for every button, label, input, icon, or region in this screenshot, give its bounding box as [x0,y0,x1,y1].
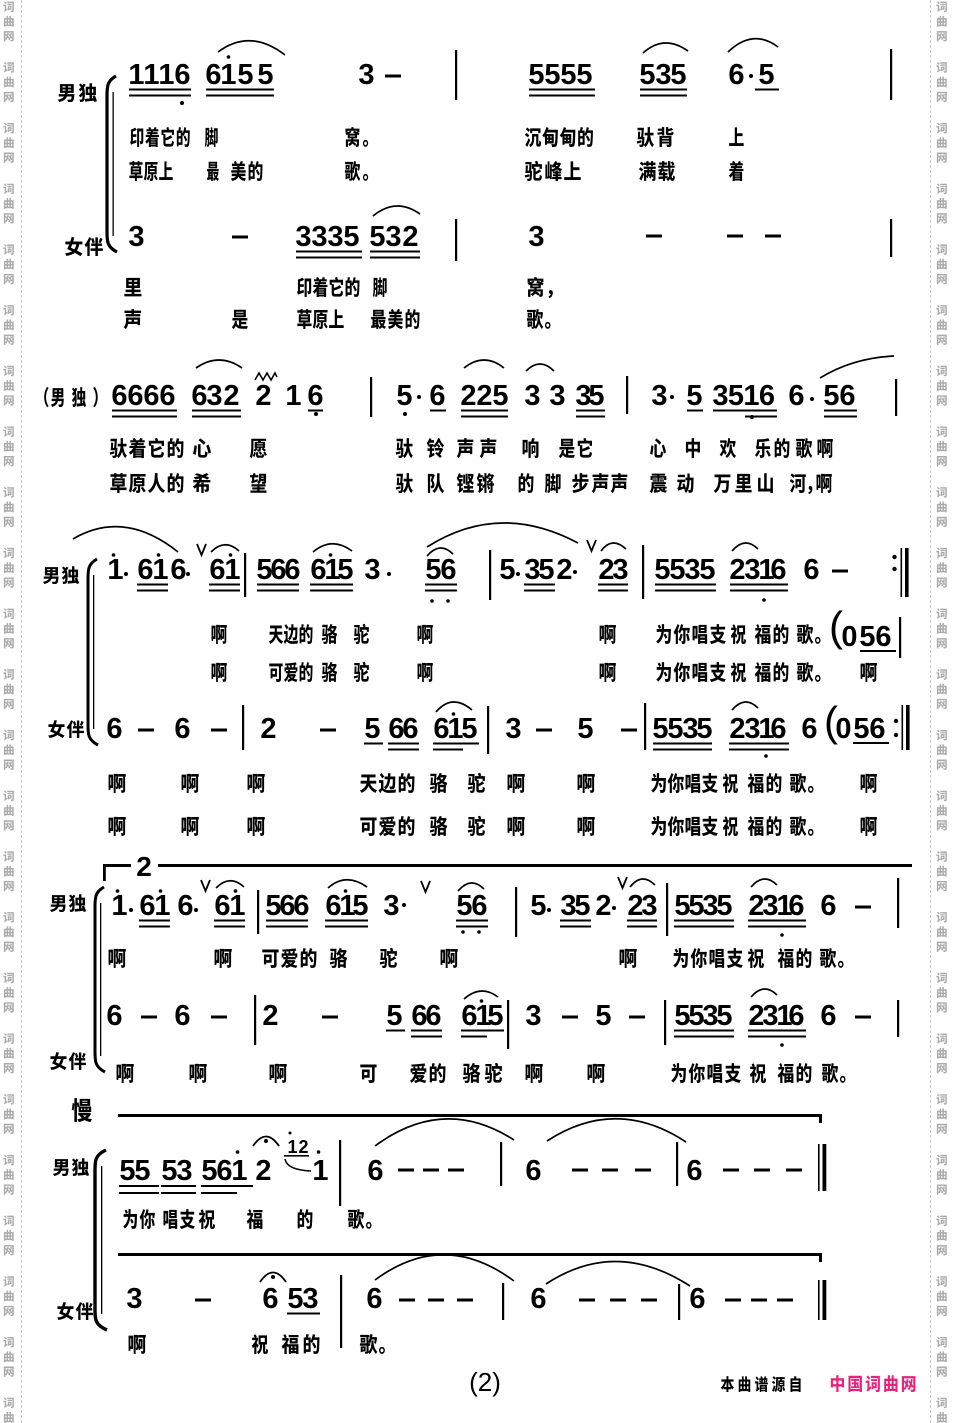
svg-text:6: 6 [214,890,230,922]
svg-text:5: 5 [257,59,273,91]
svg-text:6: 6 [127,380,143,412]
svg-text:5: 5 [287,1283,303,1315]
svg-text:5: 5 [396,380,412,412]
svg-text:5: 5 [530,890,546,922]
svg-text:6: 6 [525,1155,541,1187]
svg-text:5: 5 [343,221,359,253]
svg-text:6: 6 [788,380,804,412]
svg-text:6: 6 [788,890,804,922]
svg-text:5: 5 [134,1155,150,1187]
svg-text:5: 5 [487,1000,503,1032]
svg-text:6: 6 [177,890,193,922]
svg-text:2: 2 [556,554,572,586]
svg-text:2: 2 [595,890,611,922]
svg-text:6: 6 [293,890,309,922]
svg-text:5: 5 [386,1000,402,1032]
svg-text:6: 6 [143,380,159,412]
svg-text:6: 6 [770,554,786,586]
svg-text:6: 6 [367,1155,383,1187]
svg-text:5: 5 [461,713,477,745]
svg-text:2: 2 [136,851,152,882]
svg-text:5: 5 [492,380,508,412]
svg-text:1: 1 [111,890,127,922]
svg-text:5: 5 [237,59,253,91]
svg-text:5: 5 [364,713,380,745]
svg-text:6: 6 [216,1155,232,1187]
svg-text:1: 1 [154,890,170,922]
svg-text:5: 5 [652,713,668,745]
svg-text:6: 6 [307,380,323,412]
svg-text:6: 6 [174,713,190,745]
svg-text:6: 6 [106,713,122,745]
svg-text:6: 6 [170,554,186,586]
svg-text:1: 1 [224,554,240,586]
svg-text:5: 5 [654,554,670,586]
svg-text:1: 1 [743,380,759,412]
svg-text:3: 3 [206,380,222,412]
svg-text:5: 5 [823,380,839,412]
svg-text:1: 1 [128,59,144,91]
svg-text:6: 6 [111,380,127,412]
svg-text:5: 5 [639,59,655,91]
svg-text:5: 5 [119,1155,135,1187]
svg-text:5: 5 [574,890,590,922]
svg-text:1: 1 [231,1155,247,1187]
svg-text:5: 5 [716,1000,732,1032]
svg-text:5: 5 [595,1000,611,1032]
svg-text:1: 1 [143,59,159,91]
svg-text:0: 0 [841,621,857,653]
svg-text:6: 6 [429,380,445,412]
svg-text:3: 3 [612,554,628,586]
svg-text:3: 3 [524,380,540,412]
svg-text:3: 3 [528,221,544,253]
svg-text:5: 5 [337,554,353,586]
svg-text:3: 3 [651,380,667,412]
svg-text:6: 6 [759,380,775,412]
svg-text:3: 3 [712,380,728,412]
svg-text:2: 2 [729,554,745,586]
svg-text:1: 1 [229,890,245,922]
svg-text:2: 2 [223,380,239,412]
svg-text:6: 6 [869,713,885,745]
svg-text:1: 1 [152,554,168,586]
svg-text:3: 3 [655,59,671,91]
svg-text:6: 6 [689,1283,705,1315]
svg-text:3: 3 [128,221,144,253]
svg-text:1: 1 [220,59,236,91]
svg-text:5: 5 [538,554,554,586]
svg-text:3: 3 [505,713,521,745]
svg-text:5: 5 [576,59,592,91]
svg-text:(2): (2) [469,1367,501,1397]
svg-text:3: 3 [302,1283,318,1315]
svg-text:6: 6 [205,59,221,91]
svg-text:3: 3 [641,890,657,922]
svg-text:5: 5 [699,554,715,586]
svg-text:6: 6 [686,1155,702,1187]
svg-text:5: 5 [758,59,774,91]
svg-text:2: 2 [402,221,418,253]
svg-text:6: 6 [159,380,175,412]
svg-text:2: 2 [260,713,276,745]
svg-text:5: 5 [456,890,472,922]
svg-text:3: 3 [385,221,401,253]
svg-text:1: 1 [158,59,174,91]
svg-text:6: 6 [820,1000,836,1032]
svg-text:3: 3 [358,59,374,91]
svg-text:1: 1 [285,380,301,412]
svg-text:6: 6 [191,380,207,412]
svg-text:6: 6 [174,1000,190,1032]
svg-text:6: 6 [262,1283,278,1315]
svg-text:5: 5 [669,554,685,586]
svg-text:6: 6 [174,59,190,91]
svg-text:5: 5 [853,713,869,745]
svg-text:3: 3 [295,221,311,253]
svg-text:6: 6 [770,713,786,745]
svg-text:2: 2 [460,380,476,412]
svg-text:6: 6 [839,380,855,412]
svg-text:6: 6 [875,621,891,653]
svg-text:6: 6 [530,1283,546,1315]
svg-text:2: 2 [298,1137,308,1157]
svg-text:5: 5 [670,59,686,91]
svg-text:5: 5 [499,554,515,586]
svg-text:5: 5 [696,713,712,745]
svg-text:3: 3 [364,554,380,586]
svg-text:2: 2 [262,1000,278,1032]
svg-text:6: 6 [820,890,836,922]
svg-text:5: 5 [716,890,732,922]
svg-text:6: 6 [728,59,744,91]
svg-text:6: 6 [425,1000,441,1032]
svg-text:3: 3 [383,890,399,922]
svg-text:5: 5 [577,713,593,745]
svg-text:6: 6 [788,1000,804,1032]
svg-text:6: 6 [106,1000,122,1032]
svg-text:3: 3 [311,221,327,253]
svg-text:6: 6 [366,1283,382,1315]
svg-text:6: 6 [209,554,225,586]
svg-text:3: 3 [126,1283,142,1315]
svg-text:5: 5 [352,890,368,922]
svg-text:1: 1 [107,554,123,586]
svg-text:2: 2 [476,380,492,412]
svg-text:5: 5 [201,1155,217,1187]
svg-text:1: 1 [287,1137,297,1157]
svg-text:3: 3 [684,554,700,586]
svg-text:6: 6 [440,554,456,586]
svg-text:5: 5 [369,221,385,253]
svg-text:5: 5 [544,59,560,91]
svg-text:1: 1 [312,1155,328,1187]
svg-text:5: 5 [686,380,702,412]
svg-text:0: 0 [835,713,851,745]
svg-text:5: 5 [161,1155,177,1187]
svg-text:5: 5 [560,59,576,91]
svg-text:5: 5 [425,554,441,586]
svg-text:2: 2 [255,1155,271,1187]
svg-text:5: 5 [528,59,544,91]
svg-text:6: 6 [139,890,155,922]
svg-text:5: 5 [667,713,683,745]
svg-text:5: 5 [588,380,604,412]
svg-text:6: 6 [801,713,817,745]
svg-text:3: 3 [549,380,565,412]
svg-text:3: 3 [525,1000,541,1032]
svg-text:3: 3 [176,1155,192,1187]
svg-text:6: 6 [137,554,153,586]
svg-text:6: 6 [284,554,300,586]
svg-text:3: 3 [327,221,343,253]
svg-text:6: 6 [402,713,418,745]
svg-text:2: 2 [729,713,745,745]
svg-text:5: 5 [728,380,744,412]
svg-text:2: 2 [255,380,271,412]
svg-text:6: 6 [803,554,819,586]
svg-text:6: 6 [471,890,487,922]
svg-text:5: 5 [859,621,875,653]
